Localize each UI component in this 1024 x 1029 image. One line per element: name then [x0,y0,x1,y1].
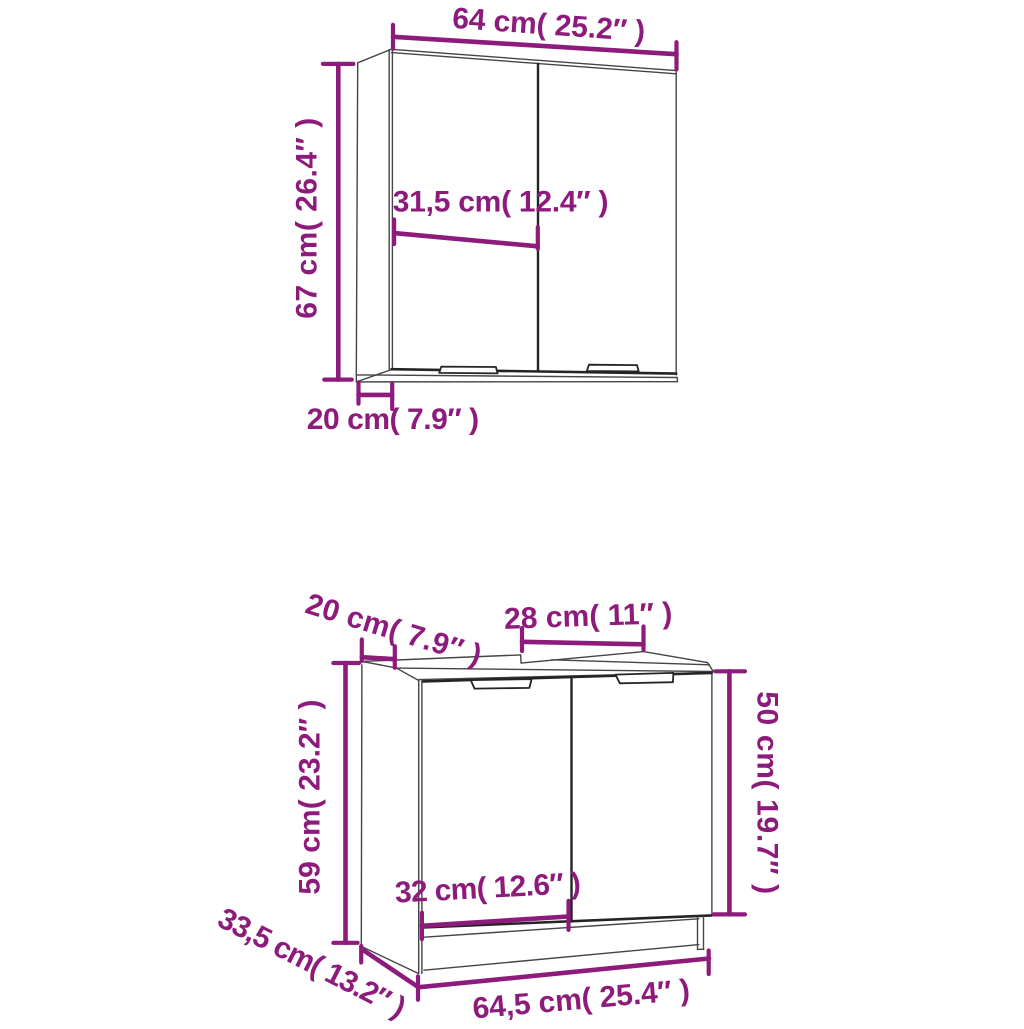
svg-text:28 cm( 11″ ): 28 cm( 11″ ) [503,597,672,636]
svg-text:20 cm( 7.9″ ): 20 cm( 7.9″ ) [307,403,479,436]
svg-text:50 cm( 19.7″ ): 50 cm( 19.7″ ) [751,691,784,895]
svg-text:59 cm( 23.2″ ): 59 cm( 23.2″ ) [294,699,327,894]
svg-text:67 cm( 26.4″ ): 67 cm( 26.4″ ) [291,117,324,318]
svg-text:31,5 cm( 12.4″ ): 31,5 cm( 12.4″ ) [393,185,609,218]
